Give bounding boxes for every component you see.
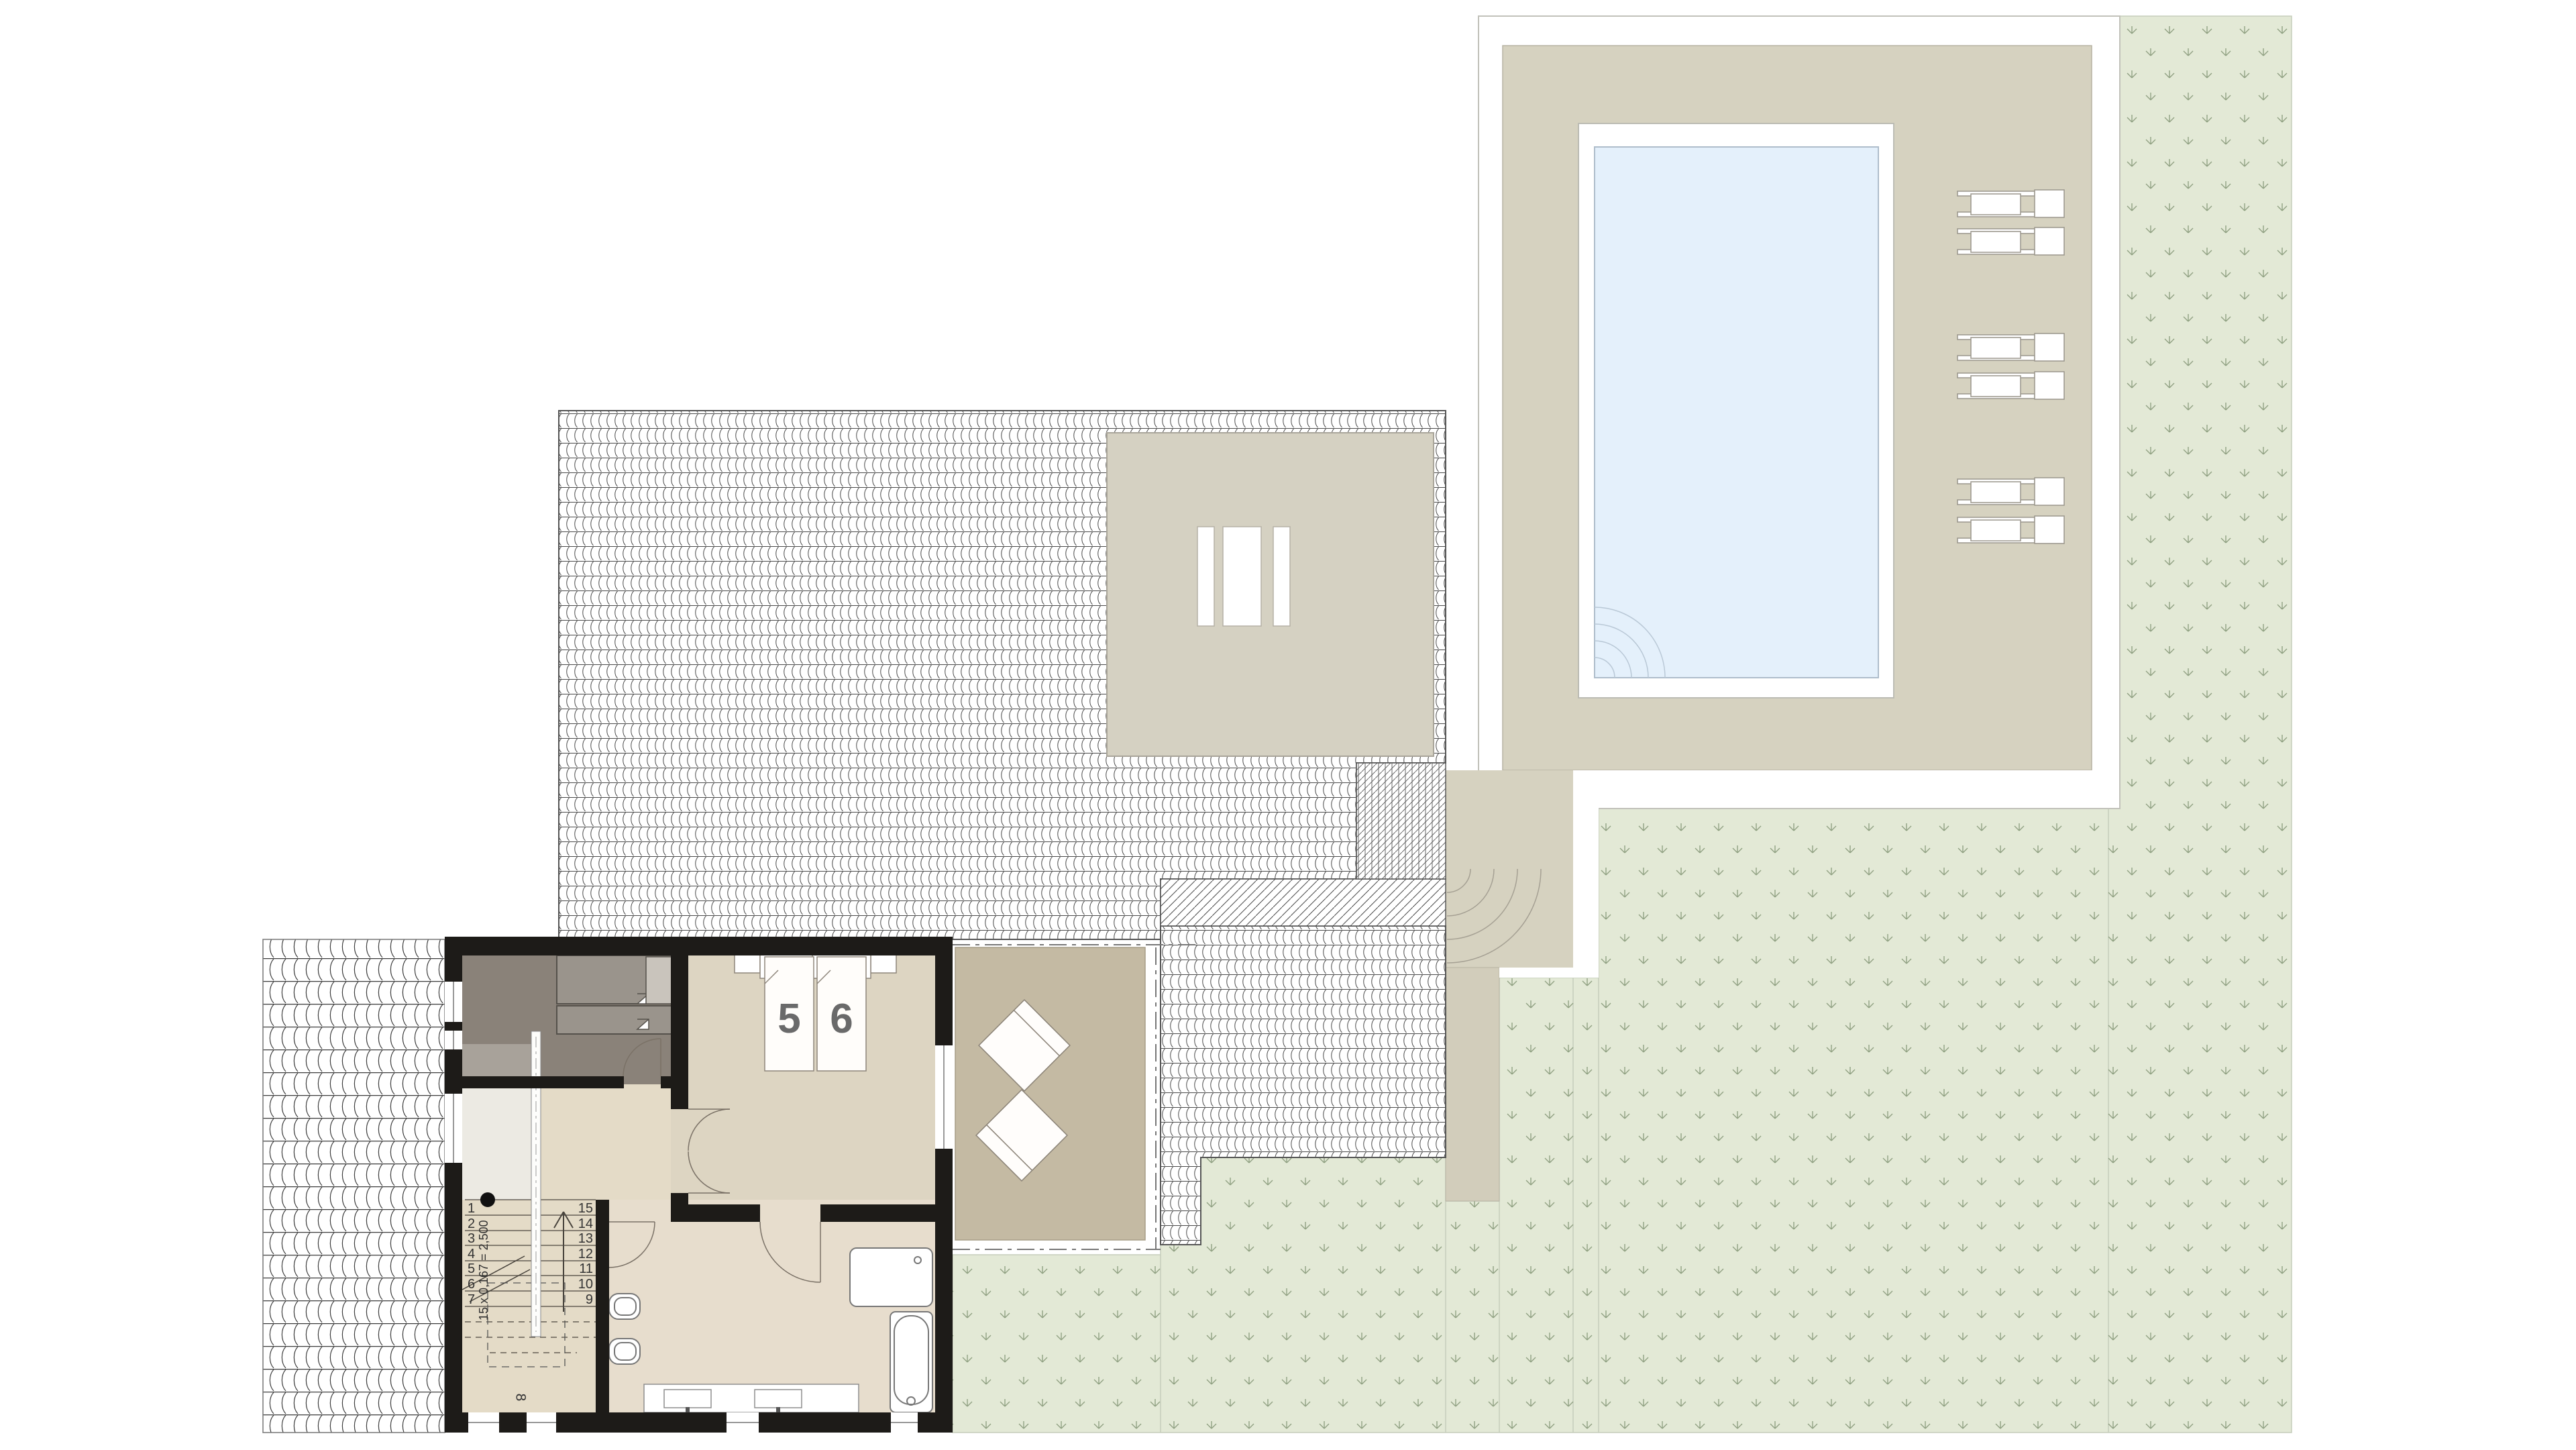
- window-icon: [727, 1412, 759, 1433]
- wall-bedroom-south: [688, 1204, 760, 1222]
- site-plan: 5 6 1 2 3 4 5 6 7 15 14 13 12 11 10 9 15…: [0, 0, 2576, 1450]
- window-icon: [891, 1412, 918, 1433]
- shower-icon: [850, 1248, 932, 1306]
- roof-eave-band: [1161, 879, 1446, 926]
- pool-deck-extension: [1446, 770, 1573, 968]
- stair-step-label: 14: [566, 1217, 593, 1231]
- wall-section-hatch: [1356, 763, 1446, 879]
- skylight-icon: [1197, 527, 1214, 626]
- wall-top: [445, 937, 953, 955]
- wall-gray-room: [462, 1076, 624, 1088]
- nightstand-icon: [735, 953, 760, 973]
- garden-path: [1446, 968, 1499, 1201]
- toilet-icon: [609, 1294, 640, 1319]
- plan-drawing: [0, 0, 2576, 1450]
- stair-step-label: 10: [566, 1278, 593, 1291]
- skylights: [1197, 527, 1290, 626]
- stair-step-label: 12: [566, 1247, 593, 1261]
- wall-bottom: [445, 1412, 953, 1433]
- deck-edge-band: [1573, 770, 1599, 978]
- house-floor-plan: [445, 937, 953, 1433]
- wall-bedroom-west: [671, 1193, 688, 1222]
- bed-number-5: 5: [765, 998, 814, 1040]
- pool-water: [1595, 147, 1878, 678]
- sun-lounger-icon: [1957, 333, 2064, 361]
- stair-step-label: 15: [566, 1202, 593, 1215]
- flat-roof: [1107, 433, 1434, 756]
- bidet-icon: [609, 1339, 640, 1364]
- sun-lounger-icon: [1957, 190, 2064, 217]
- bed-headboard: [646, 957, 672, 1004]
- sink-icon: [755, 1390, 802, 1408]
- wall-right: [935, 937, 953, 1433]
- window-icon: [527, 1412, 556, 1433]
- sun-lounger-icon: [1957, 478, 2064, 505]
- wall-bedroom-west: [671, 942, 688, 1109]
- corridor-floor: [531, 1084, 671, 1200]
- stair-step-label: 9: [566, 1293, 593, 1306]
- window-icon: [445, 1094, 462, 1163]
- wall-bedroom-south: [820, 1204, 935, 1222]
- bed-number-6: 6: [817, 998, 866, 1040]
- wall-stair-bath: [596, 1200, 609, 1412]
- scalloped-roof-area: [263, 939, 445, 1433]
- stair-step-label: 13: [566, 1232, 593, 1245]
- window-icon: [445, 1031, 462, 1049]
- nightstand-icon: [871, 953, 896, 973]
- stair-step-label: 11: [566, 1262, 593, 1276]
- sun-lounger-icon: [1957, 372, 2064, 399]
- gray-room-closet: [462, 1044, 532, 1076]
- stair-landing-label: 8: [513, 1394, 527, 1402]
- sliding-door-icon: [935, 1045, 953, 1149]
- sun-lounger-icon: [1957, 227, 2064, 255]
- deck-edge-band: [1499, 968, 1573, 978]
- deck-edge-band: [1599, 770, 2108, 790]
- gray-room-beds: [557, 955, 672, 1034]
- stair-annotation: 15 x 0,167 = 2,500: [478, 1193, 490, 1320]
- window-icon: [445, 982, 462, 1022]
- sun-lounger-icon: [1957, 516, 2064, 543]
- window-icon: [468, 1412, 499, 1433]
- bathtub-icon: [890, 1312, 932, 1412]
- skylight-icon: [1223, 527, 1261, 626]
- bed-icon: [557, 1006, 672, 1034]
- sink-icon: [664, 1390, 711, 1408]
- skylight-icon: [1273, 527, 1290, 626]
